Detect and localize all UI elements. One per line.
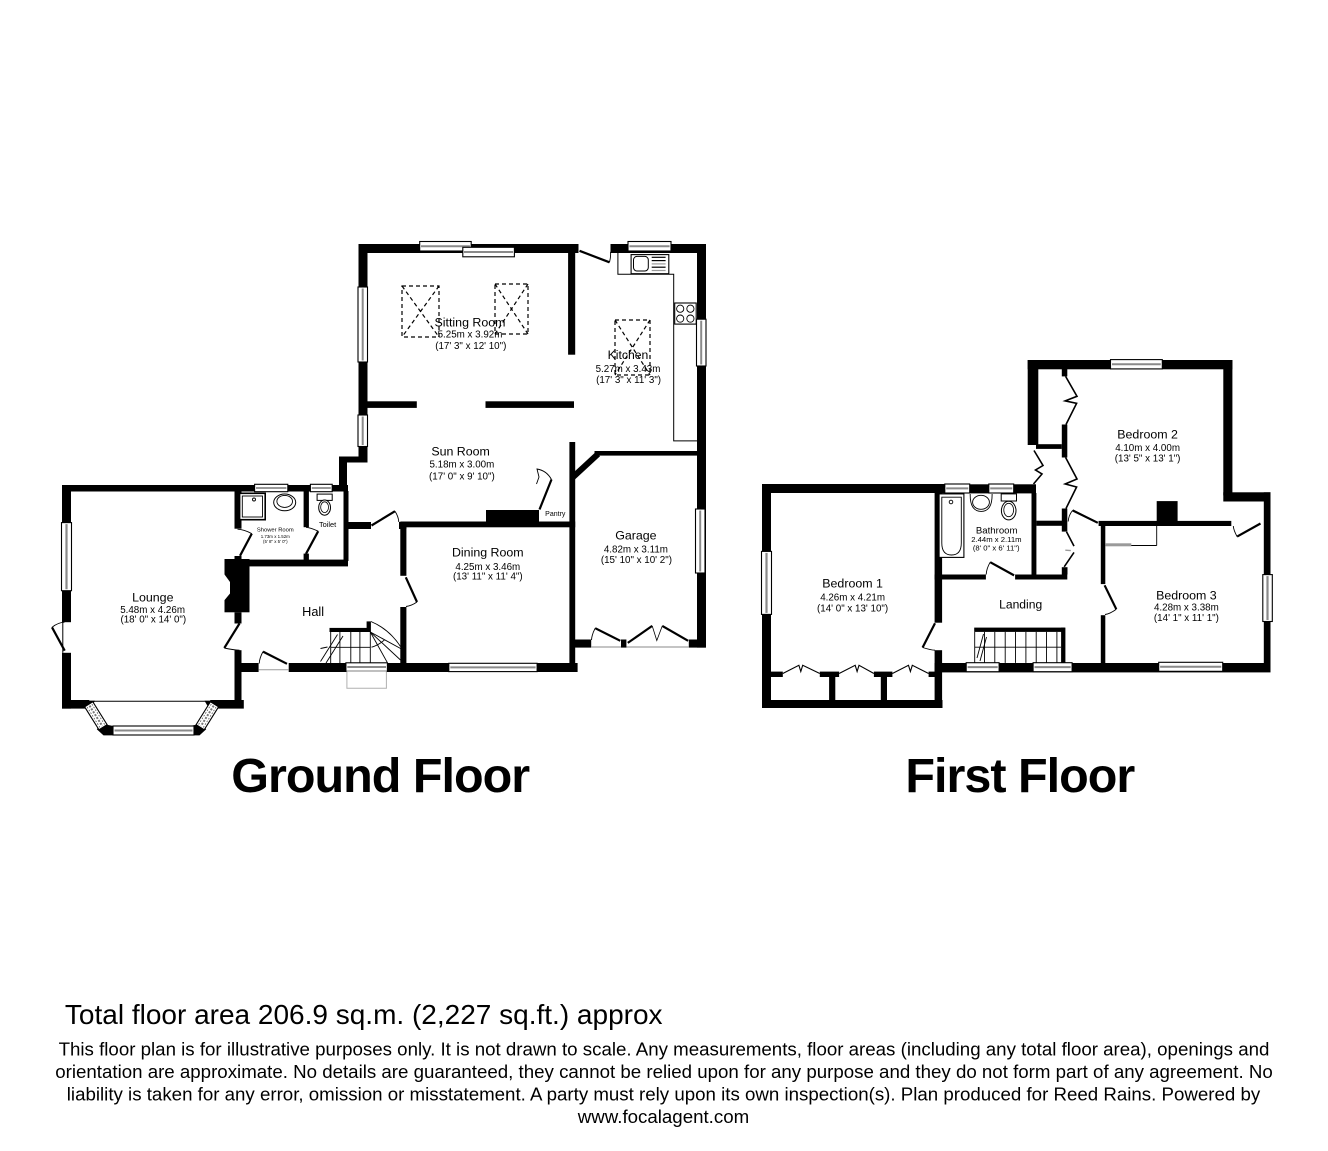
svg-text:4.28m x 3.38m: 4.28m x 3.38m <box>1154 603 1219 614</box>
svg-text:Sitting Room: Sitting Room <box>435 316 506 330</box>
svg-text:Bedroom 2: Bedroom 2 <box>1117 428 1178 442</box>
svg-text:Garage: Garage <box>615 528 656 542</box>
svg-text:Ground Floor: Ground Floor <box>231 749 530 803</box>
svg-text:orientation are approximate. N: orientation are approximate. No details … <box>55 1061 1273 1082</box>
svg-text:Pantry: Pantry <box>545 511 566 518</box>
svg-text:(14' 1" x 11' 1"): (14' 1" x 11' 1") <box>1154 613 1219 624</box>
svg-text:Bedroom 3: Bedroom 3 <box>1156 589 1217 603</box>
svg-text:Landing: Landing <box>999 598 1042 612</box>
svg-text:Bedroom 1: Bedroom 1 <box>822 576 883 590</box>
svg-text:Shower Room: Shower Room <box>257 528 294 534</box>
svg-text:4.26m x 4.21m: 4.26m x 4.21m <box>820 593 885 604</box>
svg-text:Kitchen: Kitchen <box>608 348 649 362</box>
svg-text:Dining Room: Dining Room <box>452 546 524 560</box>
svg-text:(18' 0" x 14' 0"): (18' 0" x 14' 0") <box>120 615 186 626</box>
svg-text:4.10m x 4.00m: 4.10m x 4.00m <box>1115 443 1180 454</box>
svg-text:(13' 11" x 11' 4"): (13' 11" x 11' 4") <box>453 572 523 583</box>
svg-text:Total floor area 206.9 sq.m. (: Total floor area 206.9 sq.m. (2,227 sq.f… <box>65 999 663 1030</box>
svg-text:5.18m x 3.00m: 5.18m x 3.00m <box>429 459 494 470</box>
svg-text:(17' 3" x 11' 3"): (17' 3" x 11' 3") <box>596 375 661 386</box>
svg-text:5.27m x 3.43m: 5.27m x 3.43m <box>596 364 661 375</box>
svg-text:(14' 0" x 13' 10"): (14' 0" x 13' 10") <box>817 604 888 615</box>
svg-text:(13' 5" x 13' 1"): (13' 5" x 13' 1") <box>1115 454 1181 465</box>
svg-text:First Floor: First Floor <box>905 749 1135 803</box>
svg-text:(5' 8" x 5' 0"): (5' 8" x 5' 0") <box>263 539 288 544</box>
svg-text:Toilet: Toilet <box>319 520 336 529</box>
svg-text:Hall: Hall <box>302 605 324 619</box>
svg-text:www.focalagent.com: www.focalagent.com <box>577 1106 749 1127</box>
svg-text:Sun Room: Sun Room <box>431 445 490 459</box>
svg-text:(17' 0" x 9' 10"): (17' 0" x 9' 10") <box>429 471 495 482</box>
svg-text:This floor plan is for illustr: This floor plan is for illustrative purp… <box>59 1039 1270 1060</box>
svg-text:5.25m x 3.92m: 5.25m x 3.92m <box>438 330 503 341</box>
svg-text:(17' 3" x 12' 10"): (17' 3" x 12' 10") <box>435 341 506 352</box>
svg-text:(15' 10" x 10' 2"): (15' 10" x 10' 2") <box>601 555 672 566</box>
svg-text:Lounge: Lounge <box>132 591 173 605</box>
svg-text:4.82m x 3.11m: 4.82m x 3.11m <box>604 544 668 555</box>
svg-text:(8' 0" x 6' 11"): (8' 0" x 6' 11") <box>973 544 1020 553</box>
svg-text:liability is taken for any err: liability is taken for any error, omissi… <box>67 1084 1261 1105</box>
